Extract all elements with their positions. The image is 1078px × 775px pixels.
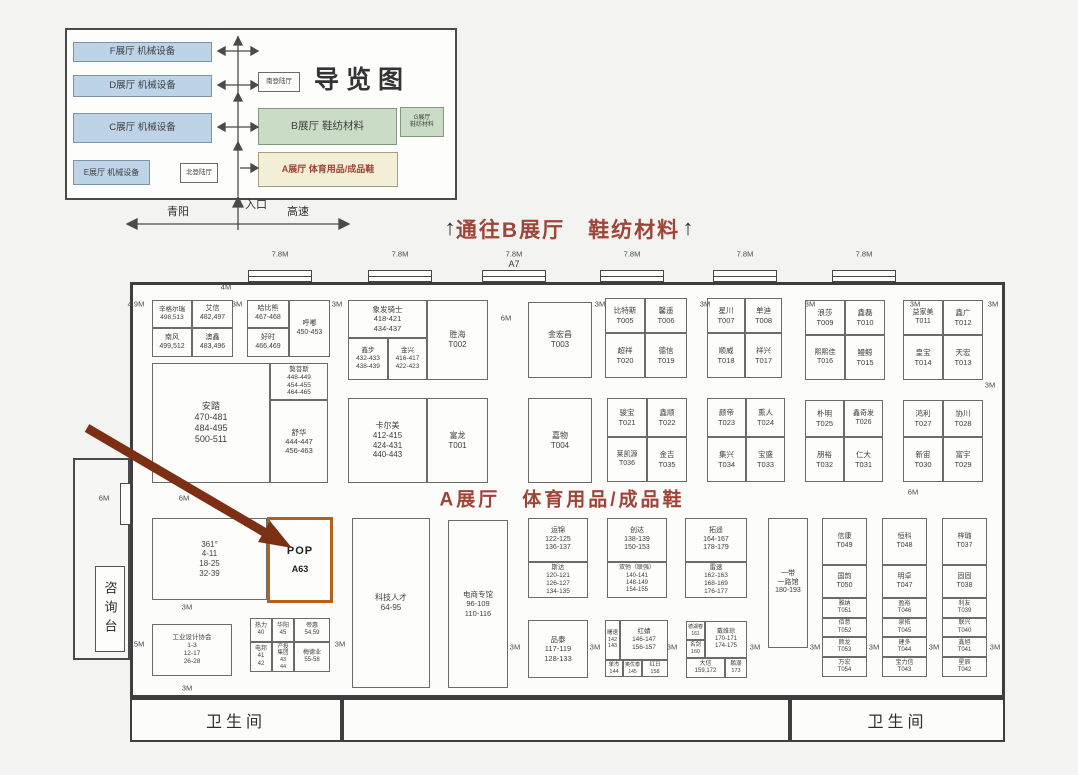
booth-label: 盈裕 <box>898 601 910 608</box>
booth-label: 新宙 <box>916 450 931 459</box>
booth-label: 138-139 <box>624 536 650 545</box>
booth: 獒菩斯448-449454-455464-465 <box>270 363 328 400</box>
booth-label: 483,496 <box>200 343 225 352</box>
booth-label: 集兴 <box>719 450 734 459</box>
booth: 鹏潮173 <box>725 658 747 678</box>
booth-label: 鑫顺 <box>660 408 675 417</box>
booth-label: 148-149 <box>626 580 648 587</box>
booth-label: T038 <box>957 582 973 591</box>
booth: 拓遥164-167178-179 <box>685 518 747 562</box>
overview-hall-label: G展厅 <box>414 115 431 122</box>
booth-label: 484-495 <box>194 423 227 434</box>
booth-label: 梓璐 <box>958 533 972 542</box>
booth: 金宏昌T003 <box>528 302 592 378</box>
door-width-label: 7.8M <box>856 250 873 259</box>
booth-label: 万宏 <box>838 660 850 667</box>
booth-label: 464-465 <box>287 389 311 397</box>
booth-label: 444-447 <box>285 437 313 446</box>
booth-label: 174-175 <box>715 643 737 650</box>
dimension-label: 3M <box>182 603 192 612</box>
booth-label: 160 <box>691 649 700 656</box>
booth-label: 424-431 <box>373 441 402 451</box>
dimension-label: 6M <box>501 314 511 323</box>
booth-label: 170-171 <box>715 636 737 643</box>
booth-label: 361° <box>201 540 218 550</box>
booth-label: 45 <box>280 630 287 637</box>
restroom-right-label: 卫生间 <box>867 708 927 732</box>
restroom-left-label: 卫生间 <box>206 708 266 732</box>
door-width-label: 7.8M <box>737 250 754 259</box>
booth: 万宏T054 <box>822 657 867 677</box>
booth-pop-a63-label: POP <box>287 545 313 558</box>
booth-label: 运锦 <box>551 527 565 536</box>
booth-label: 454-455 <box>287 382 311 390</box>
west-label: 青阳 <box>167 203 189 219</box>
booth-label: T045 <box>898 628 912 635</box>
booth-label: 110-116 <box>465 609 491 618</box>
dimension-label: 3M <box>985 381 995 390</box>
door <box>482 270 546 282</box>
restroom-left: 卫生间 <box>130 698 342 742</box>
booth-label: T021 <box>618 418 635 427</box>
booth-label: 鳗鲸 <box>858 348 873 357</box>
booth: 协川T028 <box>943 400 983 437</box>
door-a7-label: A7 <box>508 259 519 269</box>
booth: 曙速142143 <box>605 620 620 660</box>
booth: 南风499,512 <box>152 328 192 357</box>
door-width-label: 7.8M <box>272 250 289 259</box>
booth-label: 艾信 <box>206 305 220 314</box>
booth: 祥兴T017 <box>745 333 782 378</box>
overview-hall: D展厅 机械设备 <box>73 75 212 97</box>
booth-label: 154-155 <box>626 587 648 594</box>
booth-label: 55-58 <box>304 657 319 664</box>
booth-label: 鑫旭 <box>958 640 970 647</box>
booth: 金吉T035 <box>647 437 687 482</box>
booth: 呼嘟450-453 <box>289 300 330 357</box>
overview-hall: C展厅 机械设备 <box>73 113 212 143</box>
booth-label: 145 <box>628 669 636 675</box>
booth-label: 158 <box>650 669 659 676</box>
booth-label: 熙熙佳 <box>815 349 836 358</box>
door <box>832 270 896 282</box>
booth: 帝惠54,59 <box>294 618 330 642</box>
booth: 熏人T024 <box>746 398 785 437</box>
dimension-label: 3M <box>869 643 879 652</box>
booth-label: 比特斯 <box>614 306 637 315</box>
booth-label: 412-415 <box>373 431 402 441</box>
overview-hall: G展厅鞋纺材料 <box>400 107 444 137</box>
door-line <box>483 271 545 277</box>
booth-label: 鹏潮 <box>730 661 741 668</box>
booth: 颜龙T053 <box>822 637 867 657</box>
booth: 品泰117-119128-133 <box>528 620 588 678</box>
booth-label: T051 <box>838 608 852 615</box>
booth: 利友T039 <box>942 598 987 618</box>
dimension-label: 6M <box>99 494 109 503</box>
booth-label: 136-137 <box>545 544 571 553</box>
booth: 泉拓T045 <box>882 618 927 637</box>
booth-label: 名剑 <box>690 642 701 649</box>
booth-label: 122-125 <box>545 536 571 545</box>
booth: 双弛（联强）140-141148-149154-155 <box>607 562 667 598</box>
booth-label: 鑫奇发 <box>853 410 874 419</box>
booth-label: 140-141 <box>626 573 648 580</box>
booth-label: T003 <box>551 340 569 350</box>
booth-label: T032 <box>816 460 833 469</box>
booth-label: T042 <box>958 667 972 674</box>
booth: 红日158 <box>642 660 668 677</box>
overview-hall: E展厅 机械设备 <box>73 160 150 185</box>
booth-label: 星辰 <box>958 660 970 667</box>
booth-label: 仁大 <box>856 450 871 459</box>
door-width-label: 7.8M <box>506 250 523 259</box>
door <box>248 270 312 282</box>
overview-hall-label: E展厅 机械设备 <box>84 168 140 178</box>
booth-label: 鑫步 <box>362 347 375 355</box>
booth-label: T052 <box>838 628 852 635</box>
booth-pop-a63: POPA63 <box>267 517 333 603</box>
booth: 工业设计协会1-312-1726-28 <box>152 624 232 676</box>
dimension-label: 6M <box>908 488 918 497</box>
booth-label: 161 <box>691 631 699 637</box>
dimension-label: 3M <box>332 300 342 309</box>
booth: 骏宝T021 <box>607 398 647 437</box>
booth: 熙熙佳T016 <box>805 335 845 380</box>
booth: 明卓T047 <box>882 565 927 598</box>
booth-label: 一带 <box>781 570 795 579</box>
booth: 艾信482,497 <box>192 300 233 328</box>
booth-label: 单迪 <box>756 306 771 315</box>
banner-text: 通往B展厅 鞋纺材料 <box>456 214 680 244</box>
booth-label: 54,59 <box>304 630 319 637</box>
booth-label: T015 <box>856 358 873 367</box>
booth-label: T010 <box>856 318 873 327</box>
booth: 梓璐T037 <box>942 518 987 565</box>
booth-label: T008 <box>755 316 772 325</box>
booth-label: 拓遥 <box>709 527 723 536</box>
booth-label: 颜龙 <box>838 640 850 647</box>
booth: 澳鑫483,496 <box>192 328 233 357</box>
booth-label: T043 <box>898 667 912 674</box>
booth-label: 117-119 <box>545 644 571 653</box>
booth: 德湖春161 <box>686 621 705 640</box>
booth-label: 电邦 <box>255 646 267 653</box>
booth-label: 12-17 <box>184 650 201 658</box>
info-desk-label: 咨询台 <box>95 566 125 652</box>
booth-label: 莱凯源 <box>617 451 638 460</box>
booth-label: 162-163 <box>704 572 728 580</box>
booth: 国韵T050 <box>822 565 867 598</box>
booth: 鸿利T027 <box>903 400 943 437</box>
up-arrow-icon: ↑ <box>445 215 456 241</box>
booth-label: 466,469 <box>255 343 280 352</box>
booth-label: 帝惠 <box>306 623 318 630</box>
booth-label: T025 <box>816 419 833 428</box>
booth-label: 星川 <box>719 306 734 315</box>
door-line <box>369 271 431 277</box>
overview-hall: 北登陆厅 <box>180 163 218 183</box>
booth: 好时466,469 <box>247 328 289 357</box>
booth-label: 456-463 <box>285 446 313 455</box>
overview-title: 导览图 <box>314 60 410 96</box>
dimension-label: 3M <box>510 643 520 652</box>
dimension-label: 3M <box>990 643 1000 652</box>
booth-label: 4-11 <box>202 549 217 559</box>
booth-label: 骏宝 <box>620 408 635 417</box>
booth-label: 富宇 <box>956 450 971 459</box>
booth: 辛格尔瑞498,513 <box>152 300 192 328</box>
booth-label: T018 <box>717 356 734 365</box>
booth-label: 432-433 <box>356 355 380 363</box>
booth-label: T040 <box>958 628 972 635</box>
booth-label: 470-481 <box>194 412 227 423</box>
dimension-label: 3M <box>988 300 998 309</box>
booth-label: T046 <box>898 608 912 615</box>
booth-label: 64-95 <box>381 603 401 613</box>
booth-label: T013 <box>954 358 971 367</box>
booth-label: 32-39 <box>199 569 219 579</box>
dimension-label: 3M <box>335 640 345 649</box>
door <box>600 270 664 282</box>
booth-label: T039 <box>958 608 972 615</box>
booth-label: T002 <box>448 340 466 350</box>
booth: 单杰144 <box>605 660 623 677</box>
dimension-label: 4M <box>221 283 231 292</box>
east-label: 高速 <box>287 203 309 219</box>
booth: 产投集团4344 <box>272 642 294 672</box>
booth-label: 利友 <box>958 601 970 608</box>
booth: 鳗鲸T015 <box>845 335 885 380</box>
booth-label: 佰意 <box>838 620 850 627</box>
booth-label: T054 <box>838 667 852 674</box>
booth-label: 朋裕 <box>817 450 832 459</box>
booth-label: 嘉物 <box>552 431 568 441</box>
overview-hall: 南登陆厅 <box>258 72 300 92</box>
side-door <box>120 483 131 525</box>
booth: 单迪T008 <box>745 298 782 333</box>
booth: 鑫步432-433438-439 <box>348 338 388 380</box>
booth-label: 益家美 <box>913 309 934 318</box>
booth-label: T028 <box>954 419 971 428</box>
booth-label: 一路馆 <box>778 579 799 588</box>
booth: 星辰T042 <box>942 657 987 677</box>
overview-hall-label: C展厅 机械设备 <box>109 122 176 134</box>
booth: 盈裕T046 <box>882 598 927 618</box>
booth-label: 馨遥 <box>659 306 674 315</box>
booth: 颜帝T023 <box>707 398 746 437</box>
booth-label: 176-177 <box>704 588 728 596</box>
booth-label: 顺威 <box>719 346 734 355</box>
booth-label: 集团 <box>277 650 288 657</box>
booth: 星川T007 <box>707 298 745 333</box>
booth-label: T007 <box>717 316 734 325</box>
booth: 红蜻146-147156-157 <box>620 620 668 660</box>
booth-label: 建多 <box>898 640 910 647</box>
door <box>713 270 777 282</box>
booth-label: T031 <box>855 460 872 469</box>
booth: 梅德业55-58 <box>294 642 330 672</box>
booth-label: T029 <box>954 460 971 469</box>
booth-label: 180-193 <box>775 587 801 596</box>
booth-label: 泉拓 <box>898 620 910 627</box>
booth-label: 红蜻 <box>638 628 651 636</box>
booth-label: 416-417 <box>396 355 420 363</box>
booth: 馨遥T006 <box>645 298 687 333</box>
booth-label: 浪莎 <box>818 308 833 317</box>
booth-label: 胜海 <box>450 330 466 340</box>
booth: 德信T019 <box>645 333 687 378</box>
booth-label: 宝力信 <box>895 660 913 667</box>
booth: 集兴T034 <box>707 437 746 482</box>
booth-pop-a63-label: A63 <box>292 564 309 575</box>
booth: 鑫旭T041 <box>942 637 987 657</box>
booth-label: 173 <box>731 668 740 675</box>
booth-label: 电商专馆 <box>463 590 493 599</box>
booth-label: T034 <box>718 460 735 469</box>
booth-label: 41 <box>258 653 265 660</box>
booth-label: 品泰 <box>551 635 566 644</box>
booth-label: 雅纳 <box>838 601 850 608</box>
dimension-label: 3M <box>750 643 760 652</box>
booth-label: 18-25 <box>199 559 219 569</box>
dimension-label: 3M <box>595 300 605 309</box>
booth-label: 卡尔美 <box>376 421 400 431</box>
booth-label: 曙速 <box>607 630 618 637</box>
booth-label: 156-157 <box>632 644 656 652</box>
booth: 鑫顺T022 <box>647 398 687 437</box>
booth: 建多T044 <box>882 637 927 657</box>
booth-label: 159,172 <box>695 668 717 675</box>
booth-label: 142 <box>608 637 617 644</box>
booth-label: 134-135 <box>546 588 570 596</box>
overview-hall-label: 鞋纺材料 <box>410 122 434 129</box>
booth: 皇宝T014 <box>903 335 943 380</box>
booth-label: T005 <box>616 316 633 325</box>
booth-label: 44 <box>280 664 286 671</box>
booth: 佰意T052 <box>822 618 867 637</box>
booth-label: 鑫广 <box>956 308 971 317</box>
dimension-label: 3M <box>232 300 242 309</box>
booth-label: 146-147 <box>632 636 656 644</box>
booth-label: 单杰 <box>608 662 619 669</box>
booth-label: 143 <box>608 643 617 650</box>
booth-label: 朴明 <box>817 409 832 418</box>
booth: 信康T049 <box>822 518 867 565</box>
booth: 创达138-139150-153 <box>607 518 667 562</box>
booth-label: 448-449 <box>287 374 311 382</box>
booth-label: 协川 <box>956 409 971 418</box>
booth-label: 熏人 <box>758 408 773 417</box>
booth-label: 华阳 <box>277 623 289 630</box>
dimension-label: 6M <box>179 494 189 503</box>
booth-label: 创达 <box>630 527 644 536</box>
booth-label: 128-133 <box>544 654 572 663</box>
booth-label: 南风 <box>165 334 179 343</box>
booth-label: 418-421 <box>374 314 402 323</box>
booth-label: 科技人才 <box>375 593 407 603</box>
booth-label: T004 <box>551 441 569 451</box>
booth-label: T022 <box>658 418 675 427</box>
booth-label: T020 <box>616 356 633 365</box>
overview-hall-label: A展厅 体育用品/成品鞋 <box>282 164 375 175</box>
booth-label: 40 <box>258 630 265 637</box>
booth-label: 象发骑士 <box>373 305 403 314</box>
booth-label: 热力 <box>255 623 267 630</box>
booth-label: 鸿利 <box>916 409 931 418</box>
dimension-label: 4.5M <box>128 640 145 649</box>
booth: 科技人才64-95 <box>352 518 430 688</box>
booth-label: T023 <box>718 418 735 427</box>
booth-label: 498,513 <box>160 314 184 322</box>
restroom-right: 卫生间 <box>790 698 1005 742</box>
booth-label: 大信 <box>699 661 711 668</box>
booth-label: 澳鑫 <box>206 334 220 343</box>
booth-label: 皇宝 <box>916 348 931 357</box>
booth: 雅纳T051 <box>822 598 867 618</box>
booth-label: 96-109 <box>466 599 489 608</box>
booth-label: 金吉 <box>660 450 675 459</box>
booth: 鑫奇发T026 <box>844 400 883 437</box>
booth-label: 43 <box>280 657 286 664</box>
door-line <box>714 271 776 277</box>
overview-hall-label: D展厅 机械设备 <box>109 80 176 92</box>
booth: 金兴416-417422-423 <box>388 338 427 380</box>
booth-label: T014 <box>914 358 931 367</box>
booth-label: T033 <box>757 460 774 469</box>
entrance-label: 入口 <box>245 196 267 212</box>
booth-label: T036 <box>619 460 635 469</box>
booth: 一带一路馆180-193 <box>768 518 808 648</box>
booth: 朋裕T032 <box>805 437 844 482</box>
booth-label: 梅德业 <box>303 650 321 657</box>
booth-label: T019 <box>657 356 674 365</box>
booth-label: T041 <box>958 647 972 654</box>
dimension-label: 3M <box>590 643 600 652</box>
booth: 朴明T025 <box>805 400 844 437</box>
booth-label: 辛格尔瑞 <box>159 306 185 314</box>
booth-label: 戴维琼 <box>717 629 735 636</box>
booth-label: 482,497 <box>200 314 225 323</box>
booth: 大信159,172 <box>686 658 725 678</box>
booth: 奥优泰145 <box>623 660 642 677</box>
booth: 胜海T002 <box>427 300 488 380</box>
booth: 比特斯T005 <box>605 298 645 333</box>
booth-label: 明卓 <box>898 573 912 582</box>
booth-label: 红日 <box>649 662 660 669</box>
booth-label: 150-153 <box>624 544 650 553</box>
booth-label: T053 <box>838 647 852 654</box>
booth: 热力40 <box>250 618 272 642</box>
booth: 哈比熊467-468 <box>247 300 289 328</box>
booth: 名剑160 <box>686 640 705 658</box>
booth: 运锦122-125136-137 <box>528 518 588 562</box>
booth-label: 雷速 <box>710 564 723 572</box>
overview-hall-label: 北登陆厅 <box>186 169 212 177</box>
dimension-label: 3M <box>182 684 192 693</box>
booth-label: 天宏 <box>956 348 971 357</box>
booth-label: 安踏 <box>202 401 220 412</box>
booth-label: T001 <box>448 441 466 451</box>
booth-label: T044 <box>898 647 912 654</box>
overview-hall-label: 南登陆厅 <box>266 78 292 86</box>
overview-hall: F展厅 机械设备 <box>73 42 212 62</box>
booth-label: T012 <box>954 318 971 327</box>
booth-label: 168-169 <box>704 580 728 588</box>
booth-label: 1-3 <box>187 642 196 650</box>
booth-label: 超祥 <box>618 346 633 355</box>
dimension-label: 3M <box>700 300 710 309</box>
